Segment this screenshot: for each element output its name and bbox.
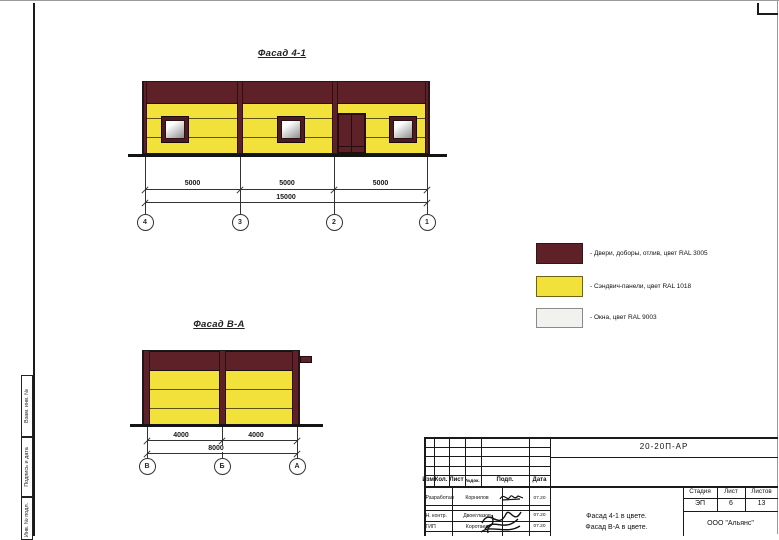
axis-bubble: 2 bbox=[326, 214, 343, 231]
legend-label: - Окна, цвет RAL 9003 bbox=[590, 314, 657, 321]
sheet-top-edge bbox=[0, 0, 779, 1]
drawing-sheet: { "colors": { "ral3005": "#5e2127", "ral… bbox=[0, 0, 779, 536]
signature-date: 07.20 bbox=[533, 496, 545, 501]
axis-label: 4 bbox=[143, 219, 147, 226]
sheets-value: 13 bbox=[758, 500, 766, 507]
column-header: №док. bbox=[465, 478, 479, 483]
sheet-title-line1: Фасад 4-1 в цвете. bbox=[586, 513, 647, 520]
axisB-trim bbox=[219, 351, 226, 425]
axis-label: 1 bbox=[425, 219, 429, 226]
legend-swatch-windows bbox=[536, 308, 583, 328]
sheet-value: 6 bbox=[729, 500, 733, 507]
axis-bubble: А bbox=[289, 458, 306, 475]
axis-label: 2 bbox=[332, 219, 336, 226]
signature-name: Корнилов bbox=[465, 495, 488, 501]
signature-role: Н. контр. bbox=[426, 513, 447, 519]
titleblock-line bbox=[683, 498, 778, 499]
titleblock-line bbox=[424, 456, 550, 457]
facade1-ground-line bbox=[128, 154, 447, 157]
sheet-header: Лист bbox=[724, 488, 738, 495]
axis-label: 3 bbox=[238, 219, 242, 226]
window-glass bbox=[165, 120, 185, 139]
column-header: Изм. bbox=[422, 477, 435, 483]
sheet-right-edge bbox=[777, 0, 778, 534]
dimension-line bbox=[147, 453, 297, 454]
sheet-title-line2: Фасад В-А в цвете. bbox=[585, 524, 647, 531]
facade1-building bbox=[142, 81, 430, 154]
corner-trim bbox=[143, 351, 150, 425]
signature-role: Разработал bbox=[426, 495, 454, 501]
window bbox=[161, 116, 189, 143]
titleblock-line bbox=[745, 486, 746, 511]
legend-label: - Сэндвич-панели, цвет RAL 1018 bbox=[590, 283, 691, 290]
axis-bubble: В bbox=[139, 458, 156, 475]
dimension-value: 5000 bbox=[278, 180, 296, 187]
axis-label: В bbox=[144, 463, 149, 470]
dimension-total: 15000 bbox=[275, 194, 296, 201]
window-glass bbox=[393, 120, 413, 139]
titleblock-line bbox=[424, 466, 550, 467]
gutter-outlet bbox=[300, 356, 312, 363]
entrance-door bbox=[337, 113, 366, 154]
axis-bubble: 3 bbox=[232, 214, 249, 231]
axis-extension-line bbox=[145, 157, 146, 214]
corner-stamp-box bbox=[757, 13, 778, 15]
titleblock-line bbox=[481, 437, 482, 488]
column-header: Кол. bbox=[435, 477, 448, 483]
facade2-title: Фасад В-А bbox=[193, 319, 244, 330]
axis-label: А bbox=[294, 463, 299, 470]
column-header: Дата bbox=[533, 477, 547, 483]
corner-trim bbox=[143, 82, 147, 153]
dimension-value: 5000 bbox=[372, 180, 390, 187]
axis-bubble: 4 bbox=[137, 214, 154, 231]
signature-role: ГИП bbox=[426, 524, 436, 530]
axis3-trim bbox=[237, 82, 243, 153]
legend-swatch-panels bbox=[536, 276, 583, 297]
titleblock-line bbox=[424, 447, 550, 448]
facade2-ground-line bbox=[130, 424, 323, 427]
document-number: 20-20П-АР bbox=[640, 442, 689, 451]
window bbox=[389, 116, 417, 143]
signature-date: 07.20 bbox=[533, 524, 545, 529]
legend-swatch-doors bbox=[536, 243, 583, 264]
signature-date: 07.20 bbox=[533, 513, 545, 518]
company-name: ООО "Альянс" bbox=[707, 520, 754, 527]
window-glass bbox=[281, 120, 301, 139]
titleblock-line bbox=[717, 486, 718, 511]
dimension-total: 8000 bbox=[207, 445, 225, 452]
axis-bubble: Б bbox=[214, 458, 231, 475]
sheets-header: Листов bbox=[751, 488, 771, 495]
dimension-line bbox=[145, 189, 427, 190]
facade2-building bbox=[142, 350, 300, 426]
sidebar-label: Подпись и дата bbox=[24, 447, 30, 487]
axis-extension-line bbox=[334, 157, 335, 214]
titleblock-line bbox=[529, 437, 530, 536]
signature-scribble bbox=[498, 490, 524, 504]
dimension-line bbox=[145, 202, 427, 203]
door-threshold-line bbox=[339, 146, 364, 147]
dimension-value: 4000 bbox=[247, 432, 265, 439]
legend-label: - Двери, доборы, отлив, цвет RAL 3005 bbox=[590, 250, 708, 257]
dimension-value: 4000 bbox=[172, 432, 190, 439]
sidebar-label: Инв. № подл. bbox=[24, 503, 30, 537]
corner-trim bbox=[425, 82, 429, 153]
sidebar-label: Взам. инв. № bbox=[24, 389, 30, 423]
axis-bubble: 1 bbox=[419, 214, 436, 231]
stage-value: ЭП bbox=[695, 500, 705, 507]
window bbox=[277, 116, 305, 143]
column-header: Подп. bbox=[497, 477, 514, 483]
axis-extension-line bbox=[427, 157, 428, 214]
signature-scribble bbox=[476, 505, 524, 535]
facade1-title: Фасад 4-1 bbox=[258, 48, 306, 59]
titleblock-line bbox=[683, 511, 778, 512]
dimension-value: 5000 bbox=[184, 180, 202, 187]
stage-header: Стадия bbox=[689, 488, 710, 495]
frame-left-line bbox=[33, 3, 35, 536]
titleblock-line bbox=[550, 457, 778, 458]
axis-label: Б bbox=[219, 463, 224, 470]
column-header: Лист bbox=[449, 477, 463, 483]
corner-trim bbox=[292, 351, 299, 425]
facade1-roof-band bbox=[143, 82, 429, 104]
titleblock-line bbox=[424, 475, 550, 476]
titleblock-line bbox=[424, 437, 778, 439]
titleblock-line bbox=[550, 437, 551, 536]
axis-extension-line bbox=[240, 157, 241, 214]
